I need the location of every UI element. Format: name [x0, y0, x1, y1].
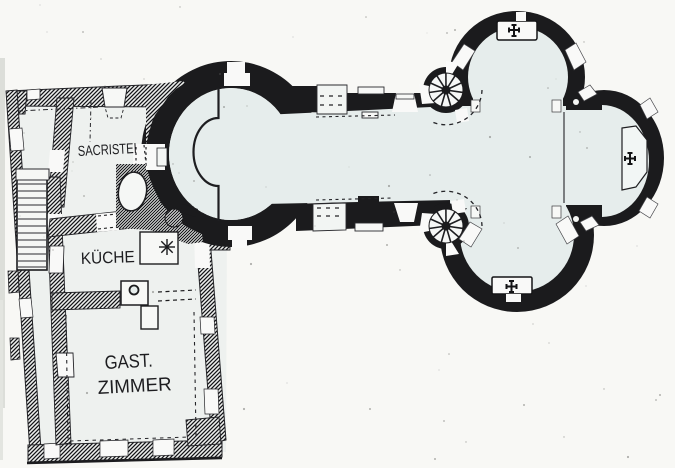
svg-text:GAST.: GAST. [104, 351, 153, 374]
svg-text:SACRISTEI: SACRISTEI [77, 141, 137, 160]
svg-text:ZIMMER: ZIMMER [97, 374, 172, 399]
svg-text:KÜCHE: KÜCHE [81, 248, 136, 268]
